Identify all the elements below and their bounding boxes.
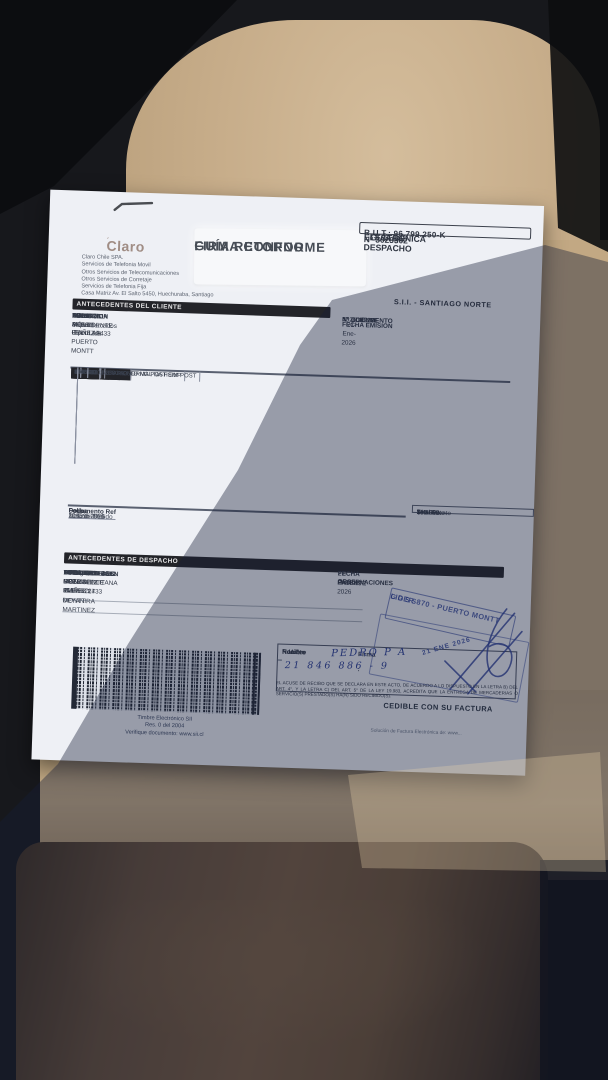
divider	[62, 611, 362, 622]
jacket-fold	[60, 900, 490, 1050]
interior-shadow-bottom-right	[540, 860, 608, 1080]
car-interior-photo: Claro´ Claro Chile SPA. Servicios de Tel…	[0, 0, 608, 1080]
sii-office: S.I.I. - SANTIAGO NORTE	[357, 296, 529, 311]
document-number: Nº 3023302	[364, 234, 408, 245]
reference-table: Documento Ref Folio Fecha Nota de Pedido…	[68, 504, 406, 517]
item-cell: 4FF GX.02 256 KB NORMAL NA HSIM POST	[71, 367, 200, 381]
legal-text: EL ACUSE DE RECIBO QUE SE DECLARA EN EST…	[276, 680, 518, 701]
rut-box: R.U.T.: 96.799.250-K GUÍA DE DESPACHO EL…	[359, 222, 531, 240]
pdf417-barcode	[71, 647, 261, 715]
return-label-line2: FIRMA CONFORME	[194, 236, 326, 257]
return-label-sticker: GUÍA RETORNO FIRMA CONFORME	[194, 228, 367, 286]
client-refs: Nº CLIENTE:4026189281 Nº DOCUMENTO: FECH…	[342, 315, 538, 321]
totals-box: Total Neto$190.672 19% IVA$36.228 Total …	[412, 505, 534, 517]
handwritten-rut: 21 846 886 - 9	[285, 660, 390, 672]
handwritten-name: PEDRO P A	[331, 647, 407, 659]
barcode-caption: Timbre Electrónico SII Res. 0 del 2004 V…	[70, 713, 259, 741]
handwritten-check-icon	[112, 198, 157, 215]
cedible-label: CEDIBLE CON SU FACTURA	[383, 701, 493, 714]
guia-despacho-document: Claro´ Claro Chile SPA. Servicios de Tel…	[31, 190, 544, 776]
items-table: CANTIDAD CODIGO DESCRIPCION PRECIO UNITA…	[70, 366, 510, 383]
divider	[63, 599, 363, 610]
ref-cell: 21 Ene 2026	[68, 505, 105, 528]
footer-note: Solución de Factura Electrónica de: www.…	[370, 729, 461, 737]
receipt-row-recinto: Recinto:Firma :	[278, 644, 283, 660]
